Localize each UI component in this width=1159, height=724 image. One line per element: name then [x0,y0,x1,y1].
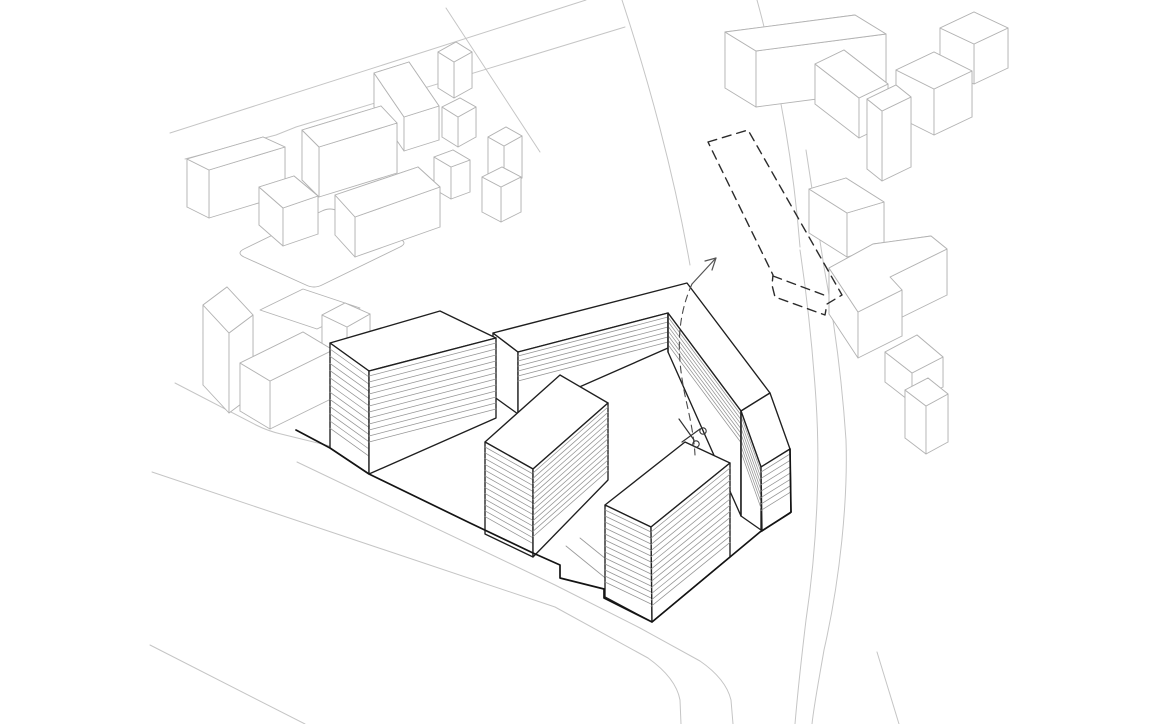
context-box-nw-j3 [482,167,521,222]
context-box-ne-tall [867,85,911,181]
slab-end-outer-edge [790,449,791,512]
axonometric-massing-diagram [0,0,1159,724]
site-plan-drawing [0,0,1159,724]
context-box-nw-e [438,42,472,98]
context-box-nw-j1 [442,98,476,147]
context-box-se-2 [905,378,948,454]
axonometric-svg [0,0,1159,724]
